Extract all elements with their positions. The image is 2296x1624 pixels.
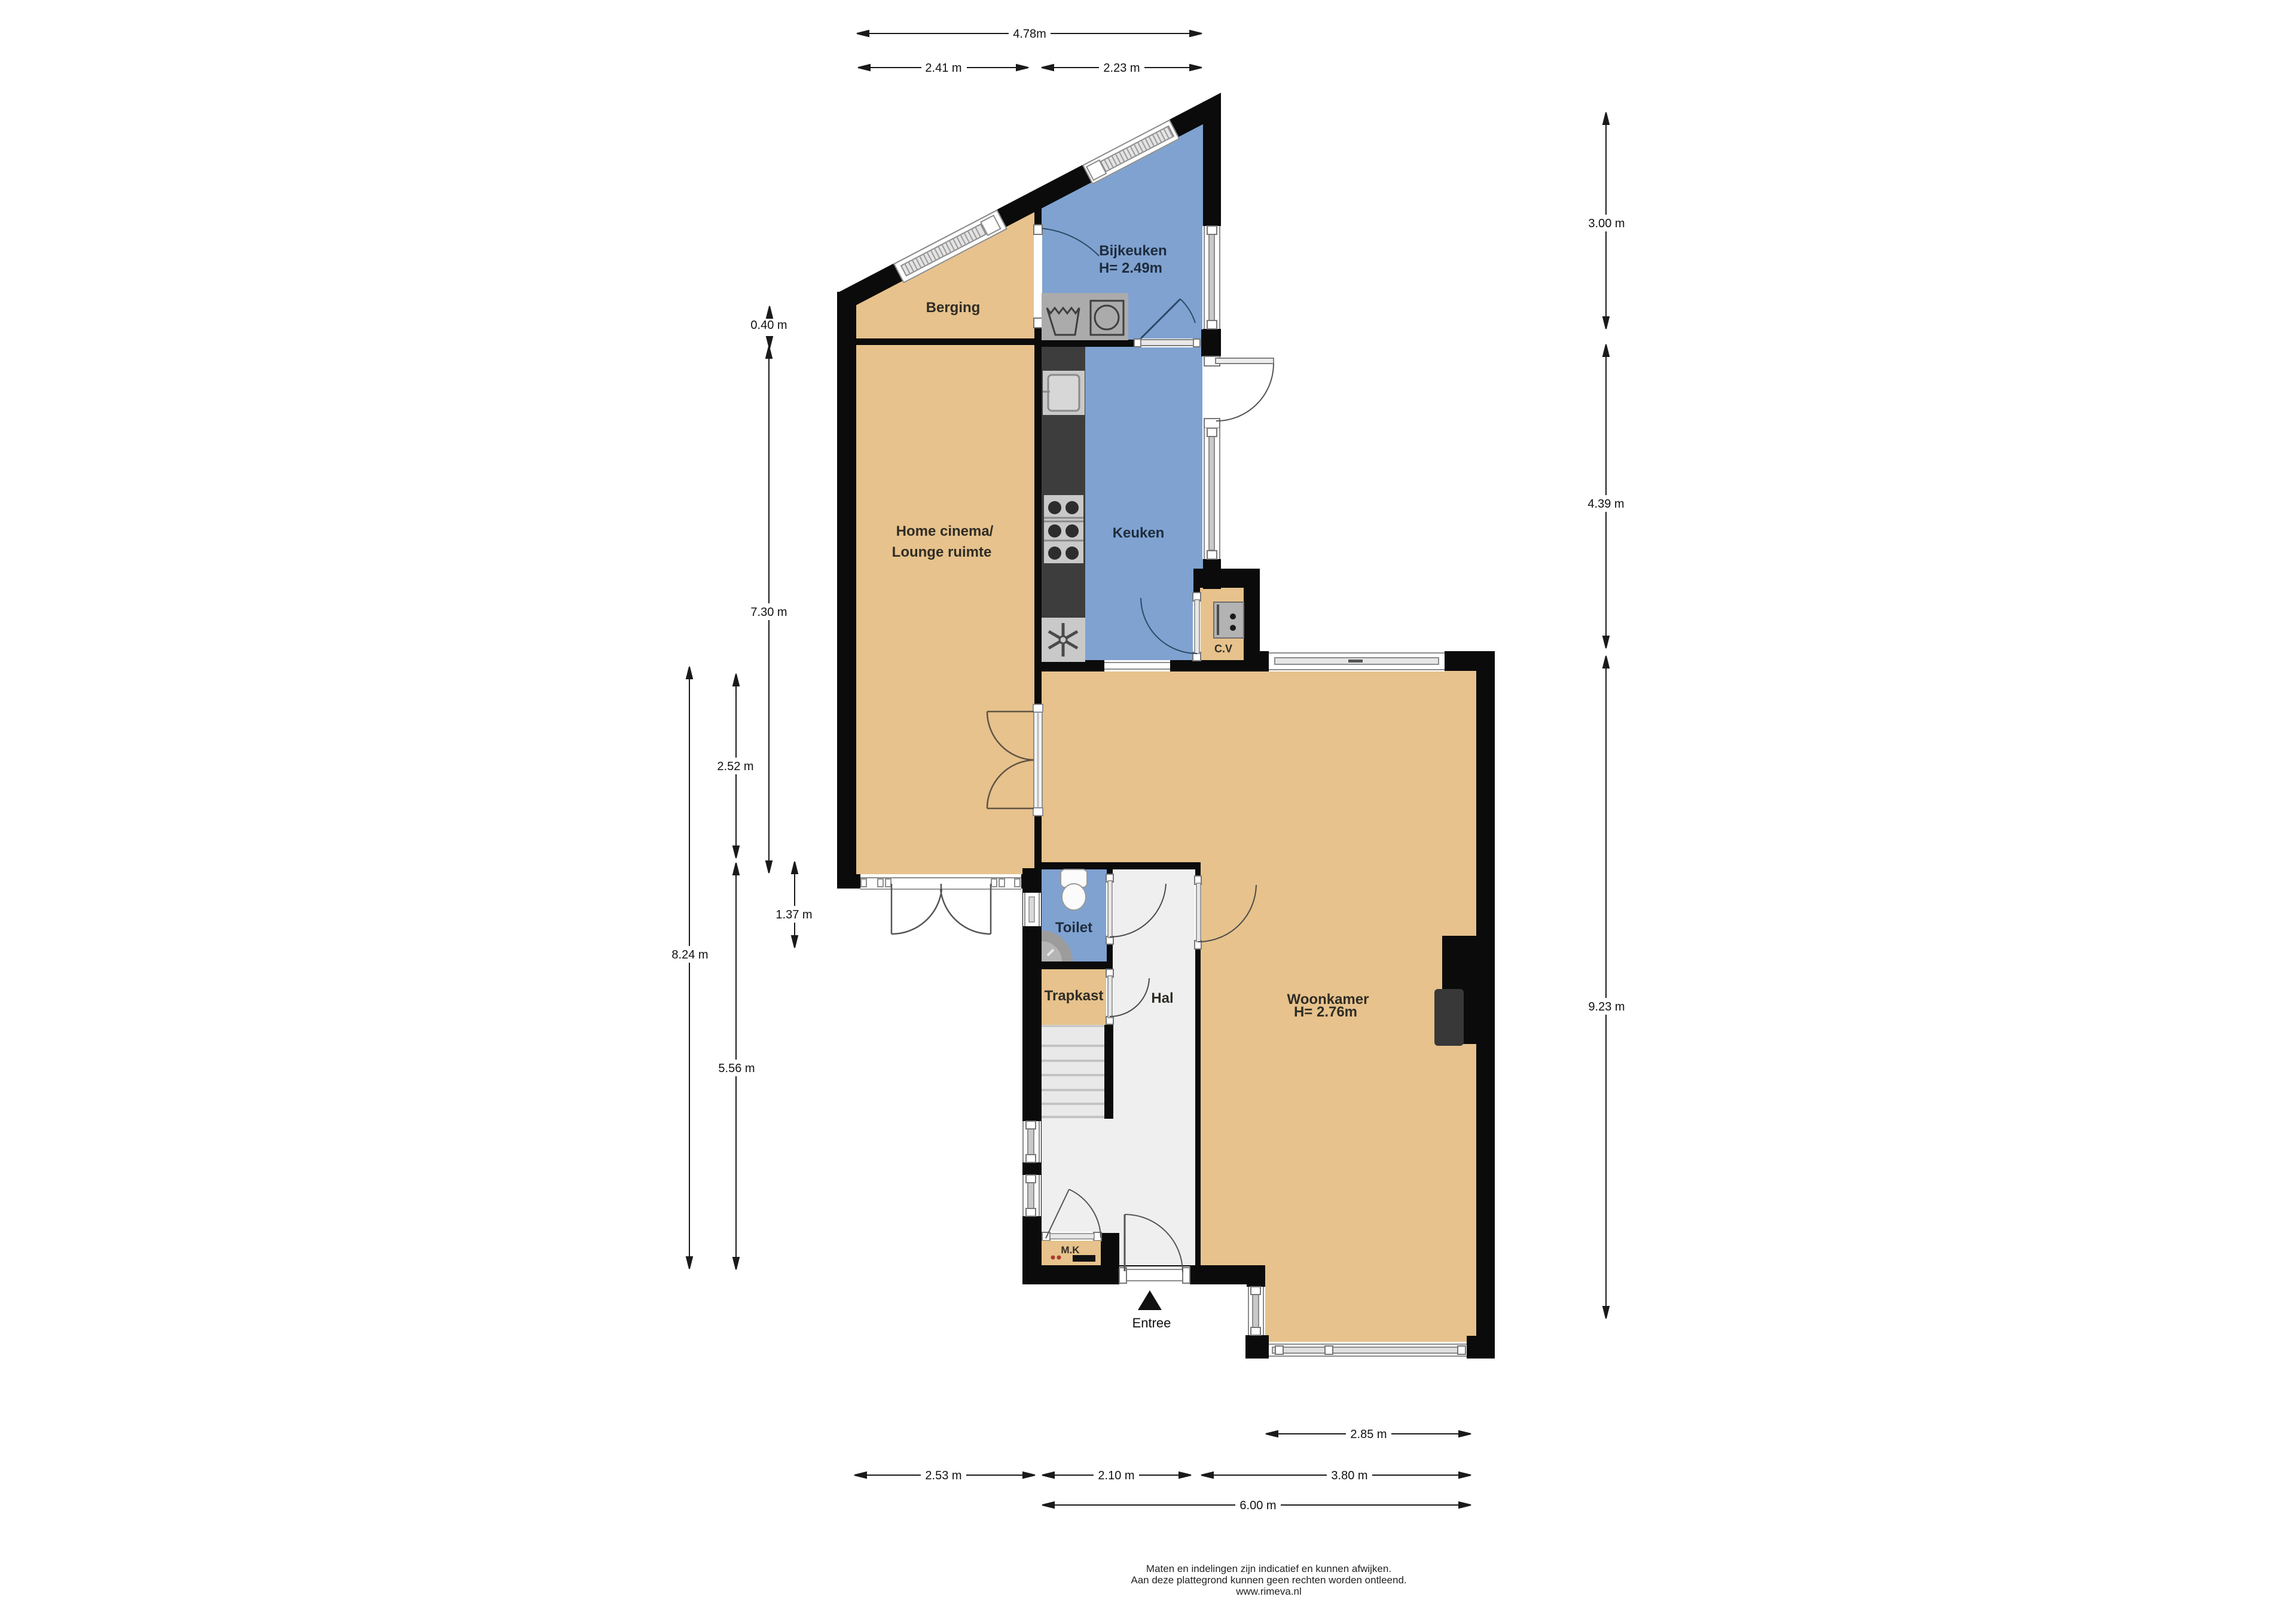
svg-text:H= 2.49m: H= 2.49m bbox=[1099, 260, 1162, 276]
svg-text:Entree: Entree bbox=[1132, 1315, 1171, 1330]
svg-text:Bijkeuken: Bijkeuken bbox=[1099, 243, 1167, 259]
svg-text:6.00 m: 6.00 m bbox=[1239, 1499, 1276, 1512]
svg-text:2.53 m: 2.53 m bbox=[925, 1469, 961, 1482]
svg-text:Toilet: Toilet bbox=[1055, 920, 1092, 936]
svg-text:0.40 m: 0.40 m bbox=[750, 319, 787, 332]
svg-text:Trapkast: Trapkast bbox=[1045, 988, 1104, 1004]
svg-text:Hal: Hal bbox=[1151, 990, 1173, 1006]
svg-text:2.41 m: 2.41 m bbox=[925, 62, 961, 75]
svg-text:1.37 m: 1.37 m bbox=[775, 908, 812, 921]
svg-text:Maten en indelingen zijn indic: Maten en indelingen zijn indicatief en k… bbox=[1146, 1563, 1391, 1574]
svg-text:Lounge ruimte: Lounge ruimte bbox=[892, 544, 992, 560]
svg-text:3.00 m: 3.00 m bbox=[1588, 217, 1625, 230]
svg-text:2.85 m: 2.85 m bbox=[1350, 1428, 1387, 1441]
svg-text:4.39 m: 4.39 m bbox=[1587, 497, 1624, 511]
svg-text:M.K: M.K bbox=[1061, 1244, 1080, 1256]
svg-text:Keuken: Keuken bbox=[1113, 525, 1165, 541]
svg-text:2.23 m: 2.23 m bbox=[1103, 62, 1140, 75]
svg-text:2.10 m: 2.10 m bbox=[1098, 1469, 1134, 1482]
svg-text:8.24 m: 8.24 m bbox=[671, 948, 708, 961]
svg-text:Berging: Berging bbox=[926, 300, 981, 316]
svg-text:3.80 m: 3.80 m bbox=[1331, 1469, 1367, 1482]
svg-text:9.23 m: 9.23 m bbox=[1588, 1000, 1625, 1014]
svg-text:C.V: C.V bbox=[1214, 643, 1232, 655]
svg-text:2.52 m: 2.52 m bbox=[717, 760, 753, 773]
svg-text:4.78m: 4.78m bbox=[1013, 28, 1046, 41]
svg-text:H= 2.76m: H= 2.76m bbox=[1294, 1004, 1357, 1020]
svg-text:Aan deze plattegrond kunnen ge: Aan deze plattegrond kunnen geen rechten… bbox=[1131, 1574, 1406, 1586]
svg-text:5.56 m: 5.56 m bbox=[718, 1062, 755, 1075]
svg-text:www.rimeva.nl: www.rimeva.nl bbox=[1235, 1586, 1302, 1597]
svg-text:7.30 m: 7.30 m bbox=[750, 606, 787, 619]
svg-text:Home cinema/: Home cinema/ bbox=[896, 523, 994, 539]
